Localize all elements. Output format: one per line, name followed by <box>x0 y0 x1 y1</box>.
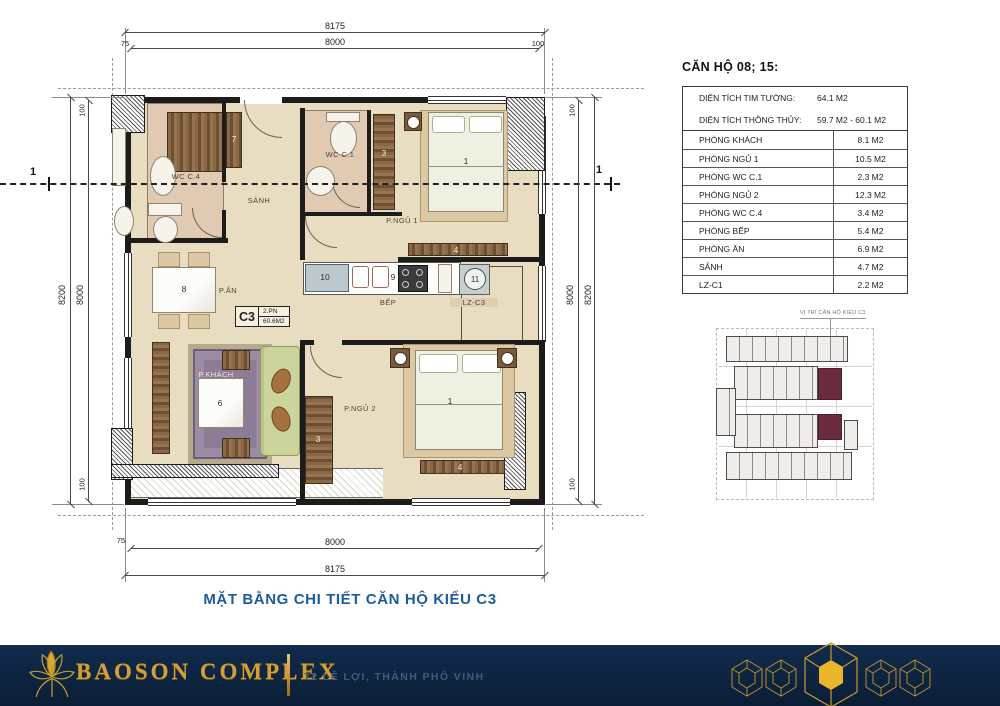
logo-flower-icon <box>24 647 80 703</box>
dim-line-bottom-inner <box>131 548 539 549</box>
diamond-cube-icon <box>898 659 932 697</box>
dim-line-right-outer <box>594 97 595 505</box>
burner-icon <box>402 269 409 276</box>
minimap-gridline <box>718 406 872 407</box>
room-label-p-ngu-1: P.NGỦ 1 <box>372 216 432 225</box>
table-row: PHÒNG BẾP 5.4 M2 <box>683 221 907 239</box>
footer-divider <box>287 654 290 696</box>
furniture-number-coffee-table: 6 <box>212 398 228 408</box>
tv-cabinet <box>152 342 170 454</box>
window-right-loggia <box>538 266 546 342</box>
ext-line <box>544 28 545 94</box>
row-label: PHÒNG NGỦ 1 <box>683 154 833 164</box>
minimap-highlight-unit-1 <box>818 368 842 400</box>
address-text: 72 LÊ LỢI, THÀNH PHỐ VINH <box>304 671 484 683</box>
dim-top-outer: 8175 <box>305 21 365 31</box>
section-marker-right: 1 <box>596 164 602 176</box>
dining-chair-3 <box>158 314 180 329</box>
section-line <box>0 183 620 185</box>
section-tick-left <box>48 177 50 191</box>
table-row: PHÒNG WC C.4 3.4 M2 <box>683 203 907 221</box>
furniture-number-closet: 7 <box>226 134 242 144</box>
table-row: PHÒNG NGỦ 2 12.3 M2 <box>683 185 907 203</box>
washing-machine: 11 <box>459 264 490 295</box>
wc-c4-toilet-tank <box>148 203 182 216</box>
wall-under-wc4 <box>125 238 228 243</box>
stool-bottom <box>222 438 250 458</box>
dim-bottom-outer: 8175 <box>305 564 365 574</box>
dim-offset-100-left-bottom: 100 <box>78 473 87 497</box>
washer-drum-icon: 11 <box>464 268 486 290</box>
dim-line-right-inner <box>578 100 579 502</box>
dim-line-bottom-outer <box>125 575 545 576</box>
row-value: 3.4 M2 <box>833 204 907 221</box>
room-label-p-ngu-2: P.NGỦ 2 <box>330 404 390 413</box>
room-label-sanh: SẢNH <box>234 196 284 205</box>
dim-right-outer: 8200 <box>583 275 593 315</box>
bed1-pillow-right <box>469 116 502 133</box>
ext-line <box>544 508 545 582</box>
dim-line-left-outer <box>70 97 71 505</box>
shaft-left-basin <box>114 206 134 236</box>
plan-title: MẶT BẰNG CHI TIẾT CĂN HỘ KIỂU C3 <box>140 591 560 608</box>
furniture-number-bed2: 1 <box>440 396 460 406</box>
dim-offset-100-left-top: 100 <box>78 99 87 123</box>
furniture-number-dining-table: 8 <box>176 284 192 294</box>
diamond-cube-icon <box>864 659 898 697</box>
brand-name: BAOSON COMPLEX <box>76 659 338 685</box>
table-row: DIỆN TÍCH TIM TƯỜNG: 64.1 M2 <box>683 87 907 109</box>
wc-c4-toilet-bowl <box>153 216 178 243</box>
minimap-building-band <box>726 336 848 362</box>
dim-line-top-outer <box>125 32 545 33</box>
nightstand-bedroom2-right <box>497 348 517 368</box>
row-value: 59.7 M2 - 60.1 M2 <box>817 109 907 130</box>
dim-right-inner: 8000 <box>565 275 575 315</box>
diamond-cube-large-icon <box>802 642 860 706</box>
furniture-number-bed1: 1 <box>456 156 476 166</box>
stool-top <box>222 350 250 370</box>
row-value: 12.3 M2 <box>833 186 907 203</box>
furniture-number-wardrobe1: 3 <box>374 148 394 158</box>
room-label-wc-c1: WC C.1 <box>314 150 366 159</box>
entry-wood-floor <box>167 112 223 172</box>
dim-line-left-inner <box>88 100 89 502</box>
minimap-caption-underline <box>800 318 866 319</box>
window-left-dining <box>124 253 132 337</box>
furniture-number-stove: 9 <box>386 272 400 282</box>
row-label: PHÒNG BẾP <box>683 226 833 236</box>
burner-icon <box>416 281 423 288</box>
dim-top-inner: 8000 <box>305 37 365 47</box>
footer: BAOSON COMPLEX 72 LÊ LỢI, THÀNH PHỐ VINH <box>0 645 1000 706</box>
wardrobe-bedroom1 <box>373 114 395 210</box>
section-marker-left: 1 <box>30 166 36 178</box>
nightstand-bedroom2-left <box>390 348 410 368</box>
furniture-number-kitchen-cabinet: 10 <box>314 272 336 282</box>
row-value: 64.1 M2 <box>817 87 907 109</box>
dim-left-outer: 8200 <box>57 275 67 315</box>
boundary-dashed-right <box>552 58 553 530</box>
table-row: LZ-C1 2.2 M2 <box>683 275 907 293</box>
row-label: PHÒNG WC C.4 <box>683 208 833 218</box>
sink-left <box>352 266 369 288</box>
minimap-building-band <box>734 414 818 448</box>
dim-offset-100-right-bottom: 100 <box>568 473 577 497</box>
info-panel-header: CĂN HỘ 08; 15: <box>682 60 779 74</box>
room-label-lz-c3: LZ-C3 <box>450 298 498 307</box>
dim-offset-100-top: 100 <box>527 39 549 48</box>
window-bottom-living <box>148 498 296 506</box>
row-label: DIỆN TÍCH THÔNG THỦY: <box>683 115 817 125</box>
row-label: DIỆN TÍCH TIM TƯỜNG: <box>683 93 817 103</box>
unit-code: C3 <box>236 307 258 326</box>
row-value: 6.9 M2 <box>833 240 907 257</box>
bed2-pillow-left <box>419 354 458 373</box>
wc-c1-sink <box>306 166 335 196</box>
unit-area: 60.6M2 <box>259 317 289 326</box>
bed2-pillow-right <box>462 354 501 373</box>
window-top <box>428 96 506 104</box>
row-value: 8.1 M2 <box>833 131 907 149</box>
row-value: 4.7 M2 <box>833 258 907 275</box>
table-row: DIỆN TÍCH THÔNG THỦY: 59.7 M2 - 60.1 M2 <box>683 109 907 131</box>
row-value: 5.4 M2 <box>833 222 907 239</box>
table-row: PHÒNG NGỦ 1 10.5 M2 <box>683 149 907 167</box>
row-label: PHÒNG KHÁCH <box>683 135 833 145</box>
sofa <box>260 346 300 456</box>
ext-line <box>125 28 126 94</box>
room-label-wc-c4: WC C.4 <box>160 172 212 181</box>
bed1-pillow-left <box>432 116 465 133</box>
unit-bedrooms: 2.PN <box>259 307 289 317</box>
table-row: PHÒNG WC C.1 2.3 M2 <box>683 167 907 185</box>
burner-icon <box>402 281 409 288</box>
dining-chair-2 <box>188 252 210 267</box>
furniture-number-dresser2: 4 <box>452 462 468 472</box>
table-row: SẢNH 4.7 M2 <box>683 257 907 275</box>
dim-line-top-inner <box>131 48 539 49</box>
row-label: PHÒNG ĂN <box>683 244 833 254</box>
table-row: PHÒNG KHÁCH 8.1 M2 <box>683 131 907 149</box>
minimap-caption: VỊ TRÍ CĂN HỘ KIỂU C3 <box>800 310 880 316</box>
bed1-blanket-line <box>428 166 504 167</box>
wall-wc1-right <box>367 110 371 212</box>
row-label: LZ-C1 <box>683 280 833 290</box>
burner-icon <box>416 269 423 276</box>
boundary-dashed-bottom <box>58 515 644 516</box>
dim-left-inner: 8000 <box>75 275 85 315</box>
column-top-right <box>506 97 545 171</box>
row-value: 10.5 M2 <box>833 150 907 167</box>
furniture-number-wardrobe2: 3 <box>310 434 326 444</box>
minimap-building-band <box>726 452 852 480</box>
ext-line <box>125 508 126 582</box>
dining-chair-1 <box>158 252 180 267</box>
window-bottom-bedroom2 <box>412 498 510 506</box>
unit-type-badge: C3 2.PN 60.6M2 <box>235 306 290 327</box>
diamond-cube-icon <box>730 659 764 697</box>
table-row: PHÒNG ĂN 6.9 M2 <box>683 239 907 257</box>
room-label-p-khach: P.KHÁCH <box>186 370 246 379</box>
nightstand-bedroom1 <box>404 112 422 131</box>
minimap-building-band <box>734 366 818 400</box>
area-table: DIỆN TÍCH TIM TƯỜNG: 64.1 M2 DIỆN TÍCH T… <box>682 86 908 294</box>
section-tick-right <box>610 177 612 191</box>
minimap-highlight-unit-2 <box>818 414 842 440</box>
row-value: 2.2 M2 <box>833 276 907 293</box>
stove <box>398 265 428 292</box>
dim-offset-100-right-top: 100 <box>568 99 577 123</box>
dim-offset-75-bottom: 75 <box>113 536 129 545</box>
row-value: 2.3 M2 <box>833 168 907 185</box>
furniture-number-desk1: 4 <box>448 245 464 255</box>
ext-line <box>52 504 124 505</box>
boundary-dashed-top <box>58 88 644 89</box>
minimap-building-annex <box>716 388 736 436</box>
shaft-left-upper <box>112 128 126 186</box>
ledge-bottom-left <box>111 464 279 478</box>
kitchen-tall-unit <box>438 264 452 293</box>
room-label-bep: BẾP <box>368 298 408 307</box>
dim-offset-75-top: 75 <box>117 39 133 48</box>
diamond-cube-icon <box>764 659 798 697</box>
minimap-building-annex <box>844 420 858 450</box>
row-label: PHÒNG WC C.1 <box>683 172 833 182</box>
row-label: PHÒNG NGỦ 2 <box>683 190 833 200</box>
room-label-p-an: P.ĂN <box>206 286 250 295</box>
row-label: SẢNH <box>683 262 833 272</box>
dim-bottom-inner: 8000 <box>305 537 365 547</box>
dining-chair-4 <box>188 314 210 329</box>
wall-wc4-right-lower <box>222 210 226 240</box>
